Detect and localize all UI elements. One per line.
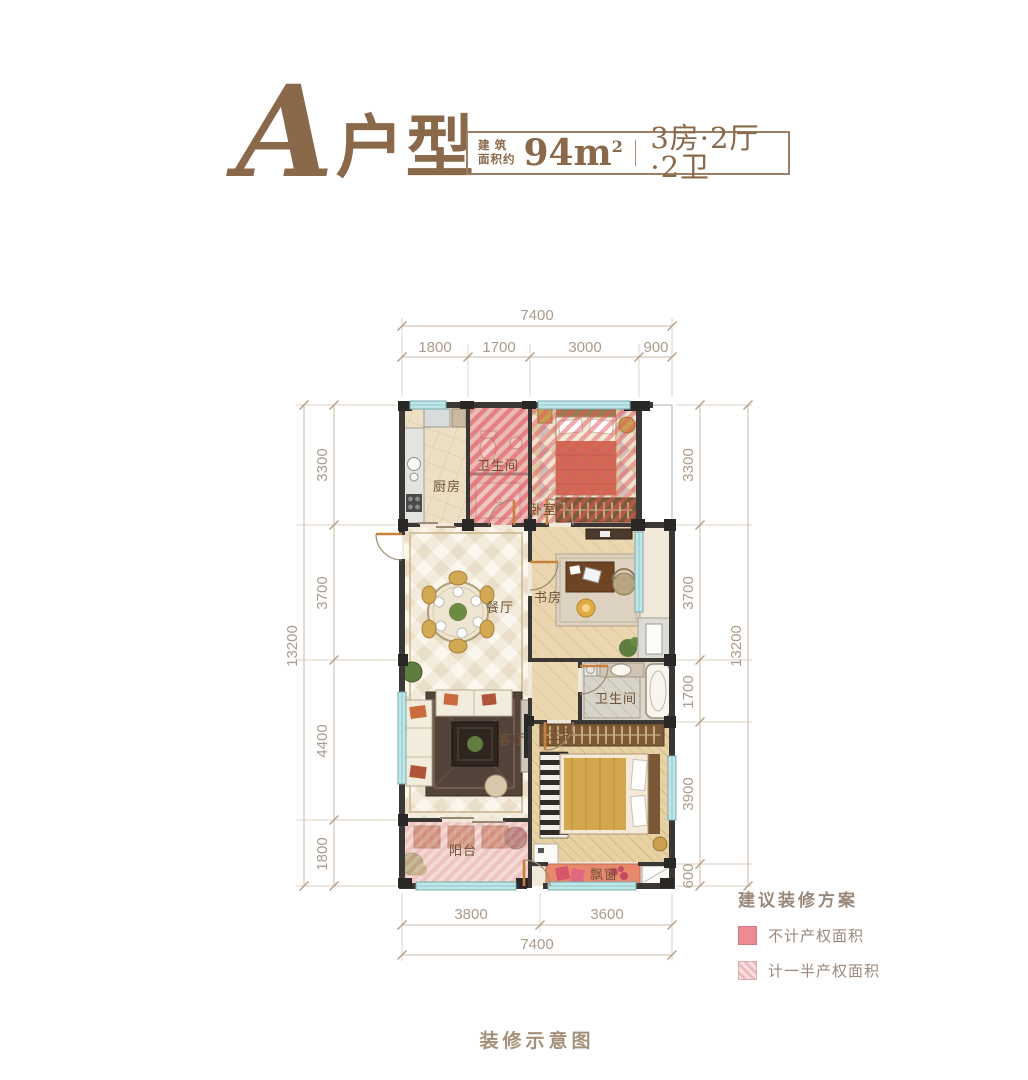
- room-label-dining: 餐厅: [486, 600, 514, 615]
- plan-caption: 装修示意图: [387, 1026, 687, 1053]
- kitchen-cabinet: [452, 409, 466, 427]
- pillow: [631, 795, 648, 826]
- kitchen-sink: [408, 458, 421, 471]
- dim-left-seg-2: 4400: [314, 724, 331, 757]
- sofa-pillow: [443, 693, 458, 705]
- legend-label: 不计产权面积: [768, 925, 864, 946]
- dim-right-seg-3: 3900: [680, 777, 697, 810]
- room-label-balcony: 阳台: [449, 843, 477, 858]
- hall-floor: [532, 662, 578, 720]
- vanity-sink: [611, 664, 631, 676]
- room-label-bedroom: 卧室: [529, 502, 557, 517]
- dim-left-total: 13200: [284, 625, 301, 667]
- table-plant: [449, 603, 467, 621]
- gold-stool: [653, 837, 667, 851]
- pillow: [631, 759, 648, 790]
- dining-chair: [449, 571, 467, 585]
- dim-left-seg-3: 1800: [314, 837, 331, 870]
- dim-left-seg-0: 3300: [314, 448, 331, 481]
- legend-swatch-pink-hatch: [738, 961, 757, 980]
- dining-chair: [422, 586, 436, 604]
- room-label-bath-master: 卫生间: [595, 691, 637, 706]
- room-label-bath-top: 卫生间: [477, 458, 519, 473]
- dim-right-seg-4: 600: [680, 863, 697, 888]
- table-plant: [467, 736, 483, 752]
- bay-pillow: [555, 866, 570, 881]
- fridge: [424, 409, 450, 427]
- dim-top-seg-1: 1700: [482, 339, 515, 356]
- dining-chair: [449, 639, 467, 653]
- ac-unit: [646, 624, 662, 654]
- dim-right-seg-0: 3300: [680, 448, 697, 481]
- dim-bottom-seg-1: 3600: [590, 906, 623, 923]
- legend-item-half-counted: 计一半产权面积: [738, 960, 880, 981]
- room-label-living: 客厅: [498, 732, 526, 747]
- sofa-pillow: [409, 765, 427, 779]
- desk-chair: [613, 573, 635, 595]
- dim-bottom-total: 7400: [520, 936, 553, 953]
- dim-right-total: 13200: [728, 625, 745, 667]
- dim-top-seg-2: 3000: [568, 339, 601, 356]
- dim-top-total: 7400: [520, 307, 553, 324]
- master-headboard: [648, 754, 660, 834]
- legend-item-not-counted: 不计产权面积: [738, 925, 880, 946]
- stove: [406, 494, 422, 512]
- decoration-legend: 建议装修方案 不计产权面积 计一半产权面积: [738, 886, 880, 981]
- stool: [485, 775, 507, 797]
- dim-right-seg-1: 3700: [680, 576, 697, 609]
- dim-right-seg-2: 1700: [680, 675, 697, 708]
- dim-top-seg-0: 1800: [418, 339, 451, 356]
- bay-pillow: [570, 868, 585, 883]
- master-blanket: [564, 758, 626, 830]
- sofa-pillow: [482, 693, 497, 705]
- room-label-master: 主卧: [548, 727, 576, 742]
- legend-label: 计一半产权面积: [768, 960, 880, 981]
- room-label-kitchen: 厨房: [433, 479, 461, 494]
- legend-title: 建议装修方案: [738, 886, 880, 911]
- room-label-study: 书房: [534, 590, 562, 605]
- dim-bottom-seg-0: 3800: [454, 906, 487, 923]
- dining-chair: [422, 620, 436, 638]
- dining-chair: [480, 620, 494, 638]
- sofa-pillow: [409, 705, 427, 719]
- legend-swatch-solid-red: [738, 926, 757, 945]
- dim-left-seg-1: 3700: [314, 576, 331, 609]
- room-label-bay-window: 飘窗: [590, 867, 618, 882]
- dim-top-seg-3: 900: [643, 339, 668, 356]
